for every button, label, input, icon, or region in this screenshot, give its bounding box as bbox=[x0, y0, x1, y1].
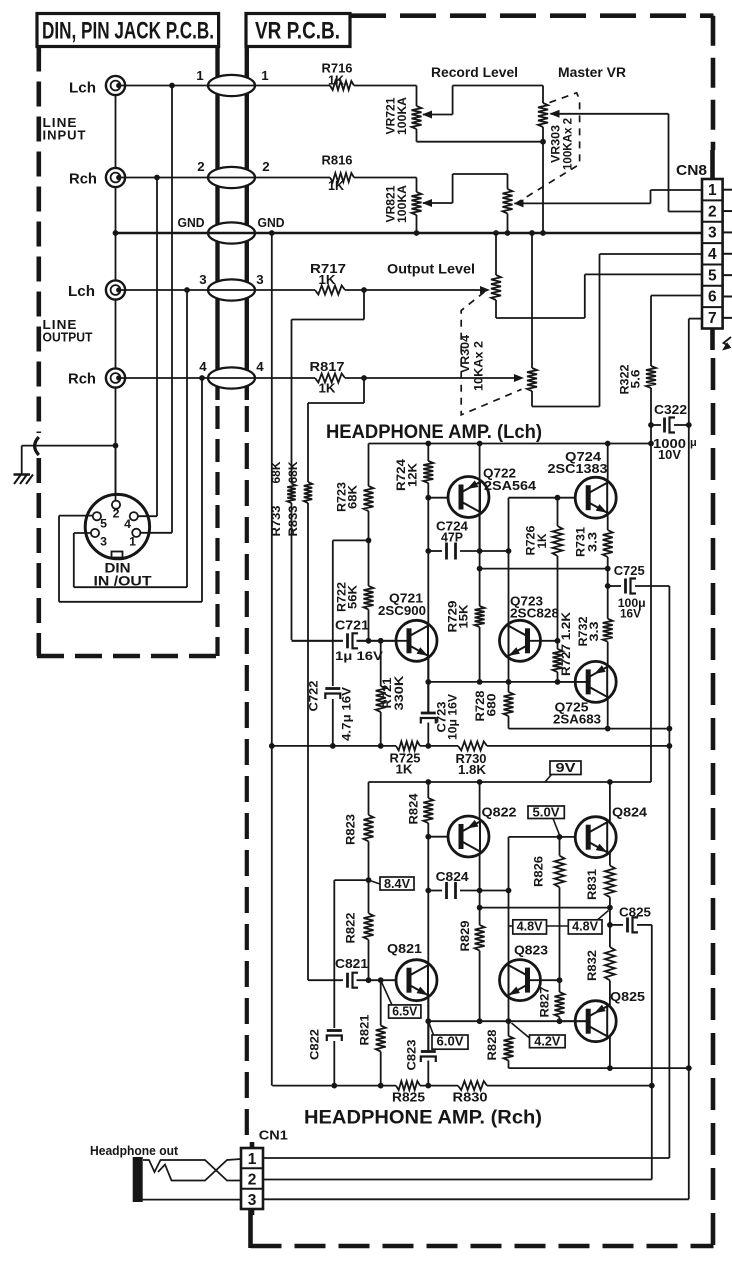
svg-text:6.0V: 6.0V bbox=[437, 1034, 464, 1049]
svg-text:Output Level: Output Level bbox=[387, 262, 475, 278]
svg-text:15K: 15K bbox=[457, 604, 471, 628]
svg-text:5.6: 5.6 bbox=[629, 369, 643, 388]
svg-text:9V: 9V bbox=[556, 760, 576, 775]
svg-text:INPUT: INPUT bbox=[43, 128, 87, 143]
svg-text:3.3: 3.3 bbox=[586, 532, 600, 552]
svg-text:7: 7 bbox=[708, 310, 717, 327]
svg-text:R828: R828 bbox=[485, 1029, 499, 1060]
svg-text:Lch: Lch bbox=[69, 81, 96, 97]
svg-text:VR P.C.B.: VR P.C.B. bbox=[255, 18, 340, 45]
svg-text:2SA564: 2SA564 bbox=[484, 478, 537, 493]
svg-text:R823: R823 bbox=[344, 814, 358, 845]
svg-text:C825: C825 bbox=[619, 905, 652, 920]
svg-text:5: 5 bbox=[100, 517, 107, 531]
svg-text:Master VR: Master VR bbox=[558, 65, 626, 81]
svg-text:4.8V: 4.8V bbox=[572, 918, 598, 933]
svg-text:Headphone out: Headphone out bbox=[90, 1143, 179, 1158]
svg-text:VR304: VR304 bbox=[458, 335, 472, 373]
svg-text:C722: C722 bbox=[307, 680, 321, 711]
svg-text:R827: R827 bbox=[538, 986, 552, 1017]
svg-text:R826: R826 bbox=[532, 856, 546, 887]
svg-text:HEADPHONE AMP. (Lch): HEADPHONE AMP. (Lch) bbox=[326, 422, 542, 443]
svg-text:10V: 10V bbox=[658, 447, 681, 462]
svg-text:4: 4 bbox=[124, 517, 131, 531]
svg-text:1: 1 bbox=[248, 1151, 257, 1168]
svg-text:1K: 1K bbox=[328, 73, 345, 88]
svg-text:68K: 68K bbox=[346, 485, 360, 509]
svg-text:C721: C721 bbox=[335, 618, 370, 633]
svg-text:C824: C824 bbox=[436, 869, 470, 884]
svg-text:5: 5 bbox=[708, 267, 717, 284]
svg-text:100KA: 100KA bbox=[395, 97, 409, 135]
svg-text:6: 6 bbox=[708, 289, 717, 306]
svg-text:Rch: Rch bbox=[68, 372, 96, 388]
svg-text:2SA683: 2SA683 bbox=[553, 712, 601, 727]
svg-text:1: 1 bbox=[708, 182, 717, 199]
svg-text:4: 4 bbox=[199, 359, 207, 374]
svg-text:R830: R830 bbox=[453, 1090, 488, 1105]
svg-text:16V: 16V bbox=[620, 607, 642, 621]
svg-text:Q825: Q825 bbox=[610, 989, 646, 1004]
svg-text:C821: C821 bbox=[335, 956, 369, 971]
svg-text:2: 2 bbox=[113, 507, 120, 521]
svg-text:C322: C322 bbox=[654, 402, 687, 417]
svg-text:5.0V: 5.0V bbox=[533, 805, 560, 820]
svg-text:3: 3 bbox=[100, 535, 107, 549]
svg-text:4: 4 bbox=[708, 246, 717, 263]
svg-text:Q822: Q822 bbox=[482, 805, 517, 820]
svg-text:2: 2 bbox=[262, 159, 269, 174]
svg-text:2: 2 bbox=[248, 1172, 257, 1189]
svg-text:OUTPUT: OUTPUT bbox=[43, 330, 93, 345]
svg-text:DIN, PIN JACK P.C.B.: DIN, PIN JACK P.C.B. bbox=[42, 18, 214, 45]
svg-text:2: 2 bbox=[197, 159, 204, 174]
svg-text:C823: C823 bbox=[405, 1039, 419, 1070]
svg-text:μ: μ bbox=[690, 437, 697, 449]
svg-text:1.8K: 1.8K bbox=[458, 762, 487, 777]
svg-text:CN8: CN8 bbox=[676, 163, 707, 179]
svg-text:CN1: CN1 bbox=[259, 1128, 289, 1143]
svg-text:1: 1 bbox=[261, 68, 269, 83]
svg-text:4: 4 bbox=[256, 359, 264, 374]
svg-text:68K: 68K bbox=[286, 461, 300, 483]
svg-text:R825: R825 bbox=[392, 1090, 425, 1105]
svg-text:Lch: Lch bbox=[68, 284, 95, 300]
svg-text:3: 3 bbox=[248, 1192, 257, 1209]
svg-text:Rch: Rch bbox=[69, 172, 97, 188]
svg-text:2SC828: 2SC828 bbox=[510, 606, 559, 621]
svg-text:Q821: Q821 bbox=[387, 941, 423, 956]
svg-text:R824: R824 bbox=[407, 793, 421, 824]
svg-text:4.2V: 4.2V bbox=[534, 1033, 560, 1048]
svg-text:100KAx 2: 100KAx 2 bbox=[561, 118, 575, 170]
svg-text:R822: R822 bbox=[344, 912, 358, 943]
svg-text:R817: R817 bbox=[310, 359, 345, 374]
svg-text:C822: C822 bbox=[308, 1029, 322, 1060]
svg-text:R821: R821 bbox=[358, 1014, 372, 1045]
svg-text:2SC1383: 2SC1383 bbox=[548, 461, 608, 476]
svg-text:680: 680 bbox=[485, 693, 499, 716]
svg-text:6.5V: 6.5V bbox=[392, 1004, 417, 1019]
svg-text:R816: R816 bbox=[322, 153, 353, 168]
svg-text:100KA: 100KA bbox=[395, 185, 409, 223]
svg-text:47P: 47P bbox=[441, 530, 463, 545]
svg-text:2: 2 bbox=[708, 203, 717, 220]
svg-text:3: 3 bbox=[256, 272, 263, 287]
svg-text:12K: 12K bbox=[406, 463, 420, 487]
svg-text:8.4V: 8.4V bbox=[384, 876, 410, 891]
svg-text:R832: R832 bbox=[585, 950, 599, 981]
svg-text:10KAx 2: 10KAx 2 bbox=[472, 341, 486, 391]
svg-text:Q823: Q823 bbox=[514, 943, 548, 958]
svg-text:1K: 1K bbox=[328, 178, 345, 193]
svg-text:Record Level: Record Level bbox=[431, 65, 518, 81]
svg-text:10μ 16V: 10μ 16V bbox=[446, 693, 460, 740]
svg-text:4.8V: 4.8V bbox=[517, 918, 543, 933]
svg-text:4.7μ 16V: 4.7μ 16V bbox=[340, 686, 354, 741]
svg-text:1: 1 bbox=[196, 68, 204, 83]
svg-text:Q824: Q824 bbox=[612, 805, 648, 820]
svg-text:R727 1.2K: R727 1.2K bbox=[559, 612, 573, 676]
svg-text:1K: 1K bbox=[396, 762, 414, 777]
svg-text:1μ 16V: 1μ 16V bbox=[335, 649, 384, 663]
svg-text:HEADPHONE AMP. (Rch): HEADPHONE AMP. (Rch) bbox=[304, 1108, 542, 1129]
svg-text:3: 3 bbox=[708, 225, 717, 242]
svg-text:GND: GND bbox=[258, 215, 285, 230]
svg-text:1: 1 bbox=[129, 535, 136, 549]
svg-text:3: 3 bbox=[199, 272, 206, 287]
svg-text:C725: C725 bbox=[614, 563, 646, 578]
svg-text:2SC900: 2SC900 bbox=[378, 603, 426, 618]
svg-text:56K: 56K bbox=[346, 585, 360, 609]
svg-text:R833: R833 bbox=[286, 505, 300, 536]
svg-text:1K: 1K bbox=[535, 533, 549, 548]
svg-text:1K: 1K bbox=[319, 381, 337, 396]
svg-text:1K: 1K bbox=[319, 272, 337, 287]
svg-text:IN /OUT: IN /OUT bbox=[94, 574, 152, 590]
svg-text:3.3: 3.3 bbox=[587, 621, 601, 641]
svg-text:R829: R829 bbox=[458, 920, 472, 951]
svg-text:330K: 330K bbox=[392, 675, 406, 710]
svg-text:R831: R831 bbox=[585, 869, 599, 900]
svg-text:GND: GND bbox=[178, 215, 205, 230]
